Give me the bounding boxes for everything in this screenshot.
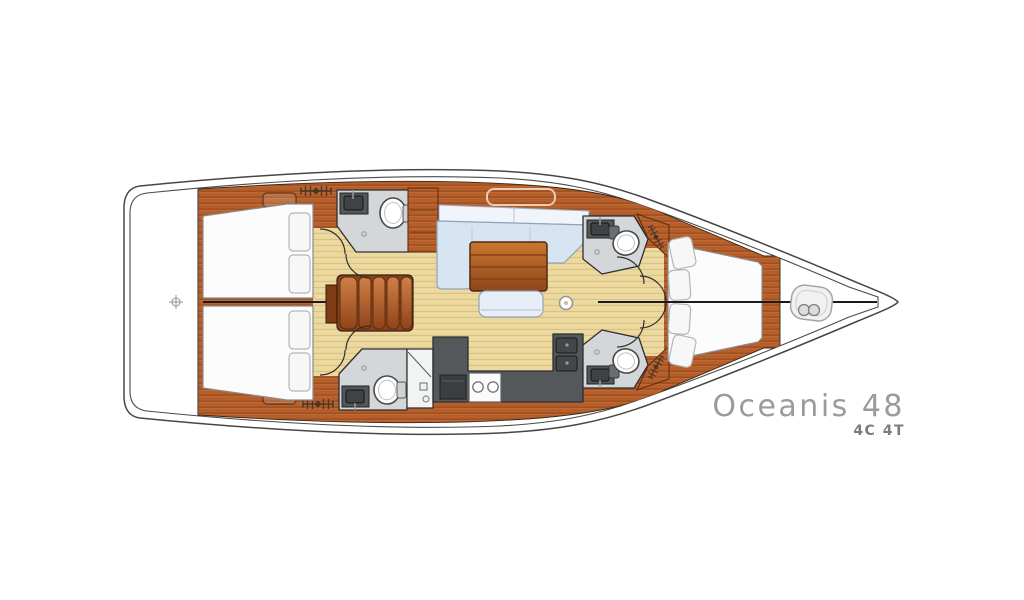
pillow (289, 311, 310, 349)
pillow (289, 213, 310, 251)
pillow (668, 303, 691, 334)
config-label: 4C 4T (853, 423, 905, 439)
sink (591, 369, 609, 381)
aft-cabin-starboard (203, 204, 313, 298)
pillow (668, 269, 691, 300)
forward-head-port (583, 330, 648, 388)
burner (488, 382, 498, 392)
burner (473, 382, 483, 392)
yacht-deck-plan: Oceanis 48 4C 4T (0, 0, 1024, 600)
sink (346, 390, 364, 403)
deck-plan-svg: Oceanis 48 4C 4T (0, 0, 1024, 600)
pillow (289, 255, 310, 293)
salon-bench (479, 291, 543, 317)
oven (440, 375, 466, 399)
deck-vent-icon (301, 186, 331, 196)
sideboard-cabinet (408, 188, 438, 252)
anchor-locker (789, 284, 834, 323)
aft-head-port (339, 349, 433, 410)
aft-cabin-port (203, 306, 313, 400)
forward-head-starboard (583, 216, 648, 274)
pillow (289, 353, 310, 391)
companionway-stairs (326, 275, 413, 331)
model-label: Oceanis 48 (712, 389, 905, 424)
toilet-tank (397, 382, 406, 398)
